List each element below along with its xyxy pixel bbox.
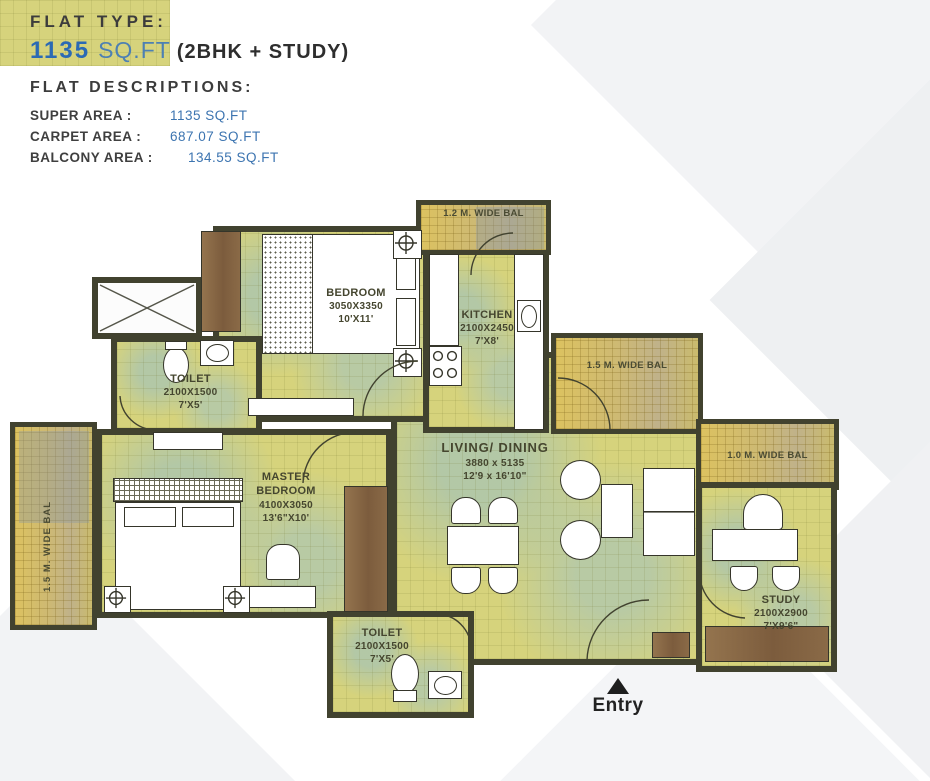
header: FLAT TYPE: 1135SQ.FT(2BHK + STUDY) FLAT …	[30, 12, 349, 168]
pillow	[182, 507, 234, 527]
balcony-right-lower-label: 1.0 M. WIDE BAL	[700, 450, 835, 462]
chair	[266, 544, 300, 580]
balcony-right-upper-label: 1.5 M. WIDE BAL	[556, 360, 698, 372]
super-area-label: SUPER AREA :	[30, 105, 162, 126]
low-dresser	[246, 586, 316, 608]
study-desk	[712, 529, 798, 561]
coffee-table	[601, 484, 633, 538]
toilet-top-dim-mm: 2100X1500	[138, 386, 243, 399]
stove-icon	[429, 346, 462, 386]
entry-arrow-icon	[607, 678, 629, 694]
armchair	[560, 520, 601, 560]
ceiling-fan-icon	[393, 348, 422, 377]
bench	[153, 432, 223, 450]
study-dim-ft: 7'X9'6"	[736, 620, 826, 633]
toilet-bottom-dim-mm: 2100X1500	[336, 640, 428, 653]
toilet-top-name: TOILET	[138, 372, 243, 386]
study-name: STUDY	[736, 593, 826, 607]
balcony-right-upper	[551, 333, 703, 434]
living-dining-dim-ft: 12'9 x 16'10"	[420, 470, 570, 483]
flat-size-unit: SQ.FT	[98, 37, 171, 63]
master-bedroom-dim-mm: 4100X3050	[243, 499, 329, 512]
flat-descriptions-label: FLAT DESCRIPTIONS:	[30, 79, 349, 97]
flat-size-line: 1135SQ.FT(2BHK + STUDY)	[30, 37, 349, 65]
super-area-row: SUPER AREA : 1135 SQ.FT	[30, 105, 349, 126]
bedroom-label-group: BEDROOM 3050X3350 10'X11'	[300, 286, 412, 326]
toilet-bottom-name: TOILET	[336, 626, 428, 640]
wardrobe	[201, 231, 241, 332]
desk-chair	[743, 494, 783, 530]
sofa	[643, 468, 695, 556]
balcony-top-label: 1.2 M. WIDE BAL	[421, 208, 546, 220]
kitchen-dim-mm: 2100X2450	[437, 322, 537, 335]
dining-table	[447, 526, 519, 565]
master-bedroom-name: MASTER BEDROOM	[243, 470, 329, 499]
flat-type-label: FLAT TYPE:	[30, 12, 349, 32]
floor-plan-page: FLAT TYPE: 1135SQ.FT(2BHK + STUDY) FLAT …	[0, 0, 930, 781]
area-table: SUPER AREA : 1135 SQ.FT CARPET AREA : 68…	[30, 105, 349, 168]
toilet-bottom-dim-ft: 7'X5'	[336, 653, 428, 666]
balcony-area-value: 134.55 SQ.FT	[188, 147, 279, 168]
bedroom-name: BEDROOM	[300, 286, 412, 300]
study-dim-mm: 2100X2900	[736, 607, 826, 620]
living-dining-label-group: LIVING/ DINING 3880 x 5135 12'9 x 16'10"	[420, 440, 570, 483]
balcony-area-row: BALCONY AREA : 134.55 SQ.FT	[30, 147, 349, 168]
bedroom-dim-ft: 10'X11'	[300, 313, 412, 326]
carpet-area-value: 687.07 SQ.FT	[170, 126, 261, 147]
master-bedroom-dim-ft: 13'6"X10'	[243, 512, 329, 525]
toilet-tank	[165, 341, 187, 350]
master-bedroom-label-group: MASTER BEDROOM 4100X3050 13'6"X10'	[243, 470, 329, 525]
dining-chair	[451, 567, 481, 594]
super-area-value: 1135 SQ.FT	[170, 105, 248, 126]
toilet-top-dim-ft: 7'X5'	[138, 399, 243, 412]
kitchen-dim-ft: 7'X8'	[437, 335, 537, 348]
ceiling-fan-icon	[223, 586, 250, 613]
study-label-group: STUDY 2100X2900 7'X9'6"	[736, 593, 826, 633]
dining-chair	[488, 497, 518, 524]
basin	[434, 676, 457, 695]
kitchen-label-group: KITCHEN 2100X2450 7'X8'	[437, 308, 537, 348]
shoe-cabinet	[652, 632, 690, 658]
dining-chair	[488, 567, 518, 594]
toilet-bottom-label-group: TOILET 2100X1500 7'X5'	[336, 626, 428, 666]
bedroom-dim-mm: 3050X3350	[300, 300, 412, 313]
entry-label: Entry	[588, 695, 648, 717]
washbasin	[200, 340, 234, 366]
entry-marker: Entry	[588, 678, 648, 717]
dresser	[248, 398, 354, 416]
ceiling-fan-icon	[393, 230, 422, 259]
flat-config: (2BHK + STUDY)	[177, 41, 349, 63]
kitchen-name: KITCHEN	[437, 308, 537, 322]
basin	[206, 344, 229, 362]
dining-chair	[451, 497, 481, 524]
washbasin	[428, 671, 462, 699]
pillow	[124, 507, 176, 527]
balcony-left-label: 1.5 M. WIDE BAL	[42, 462, 53, 592]
service-shaft	[92, 277, 202, 339]
carpet-area-label: CARPET AREA :	[30, 126, 162, 147]
living-dining-name: LIVING/ DINING	[420, 440, 570, 457]
ceiling-fan-icon	[104, 586, 131, 613]
wardrobe	[344, 486, 388, 612]
living-dining-dim-mm: 3880 x 5135	[420, 457, 570, 470]
carpet-area-row: CARPET AREA : 687.07 SQ.FT	[30, 126, 349, 147]
balcony-shade	[19, 431, 89, 523]
headboard-shelf	[113, 478, 243, 502]
toilet-top-label-group: TOILET 2100X1500 7'X5'	[138, 372, 243, 412]
flat-size: 1135	[30, 37, 90, 64]
balcony-left	[10, 422, 97, 630]
balcony-area-label: BALCONY AREA :	[30, 147, 162, 168]
toilet-tank	[393, 690, 417, 702]
